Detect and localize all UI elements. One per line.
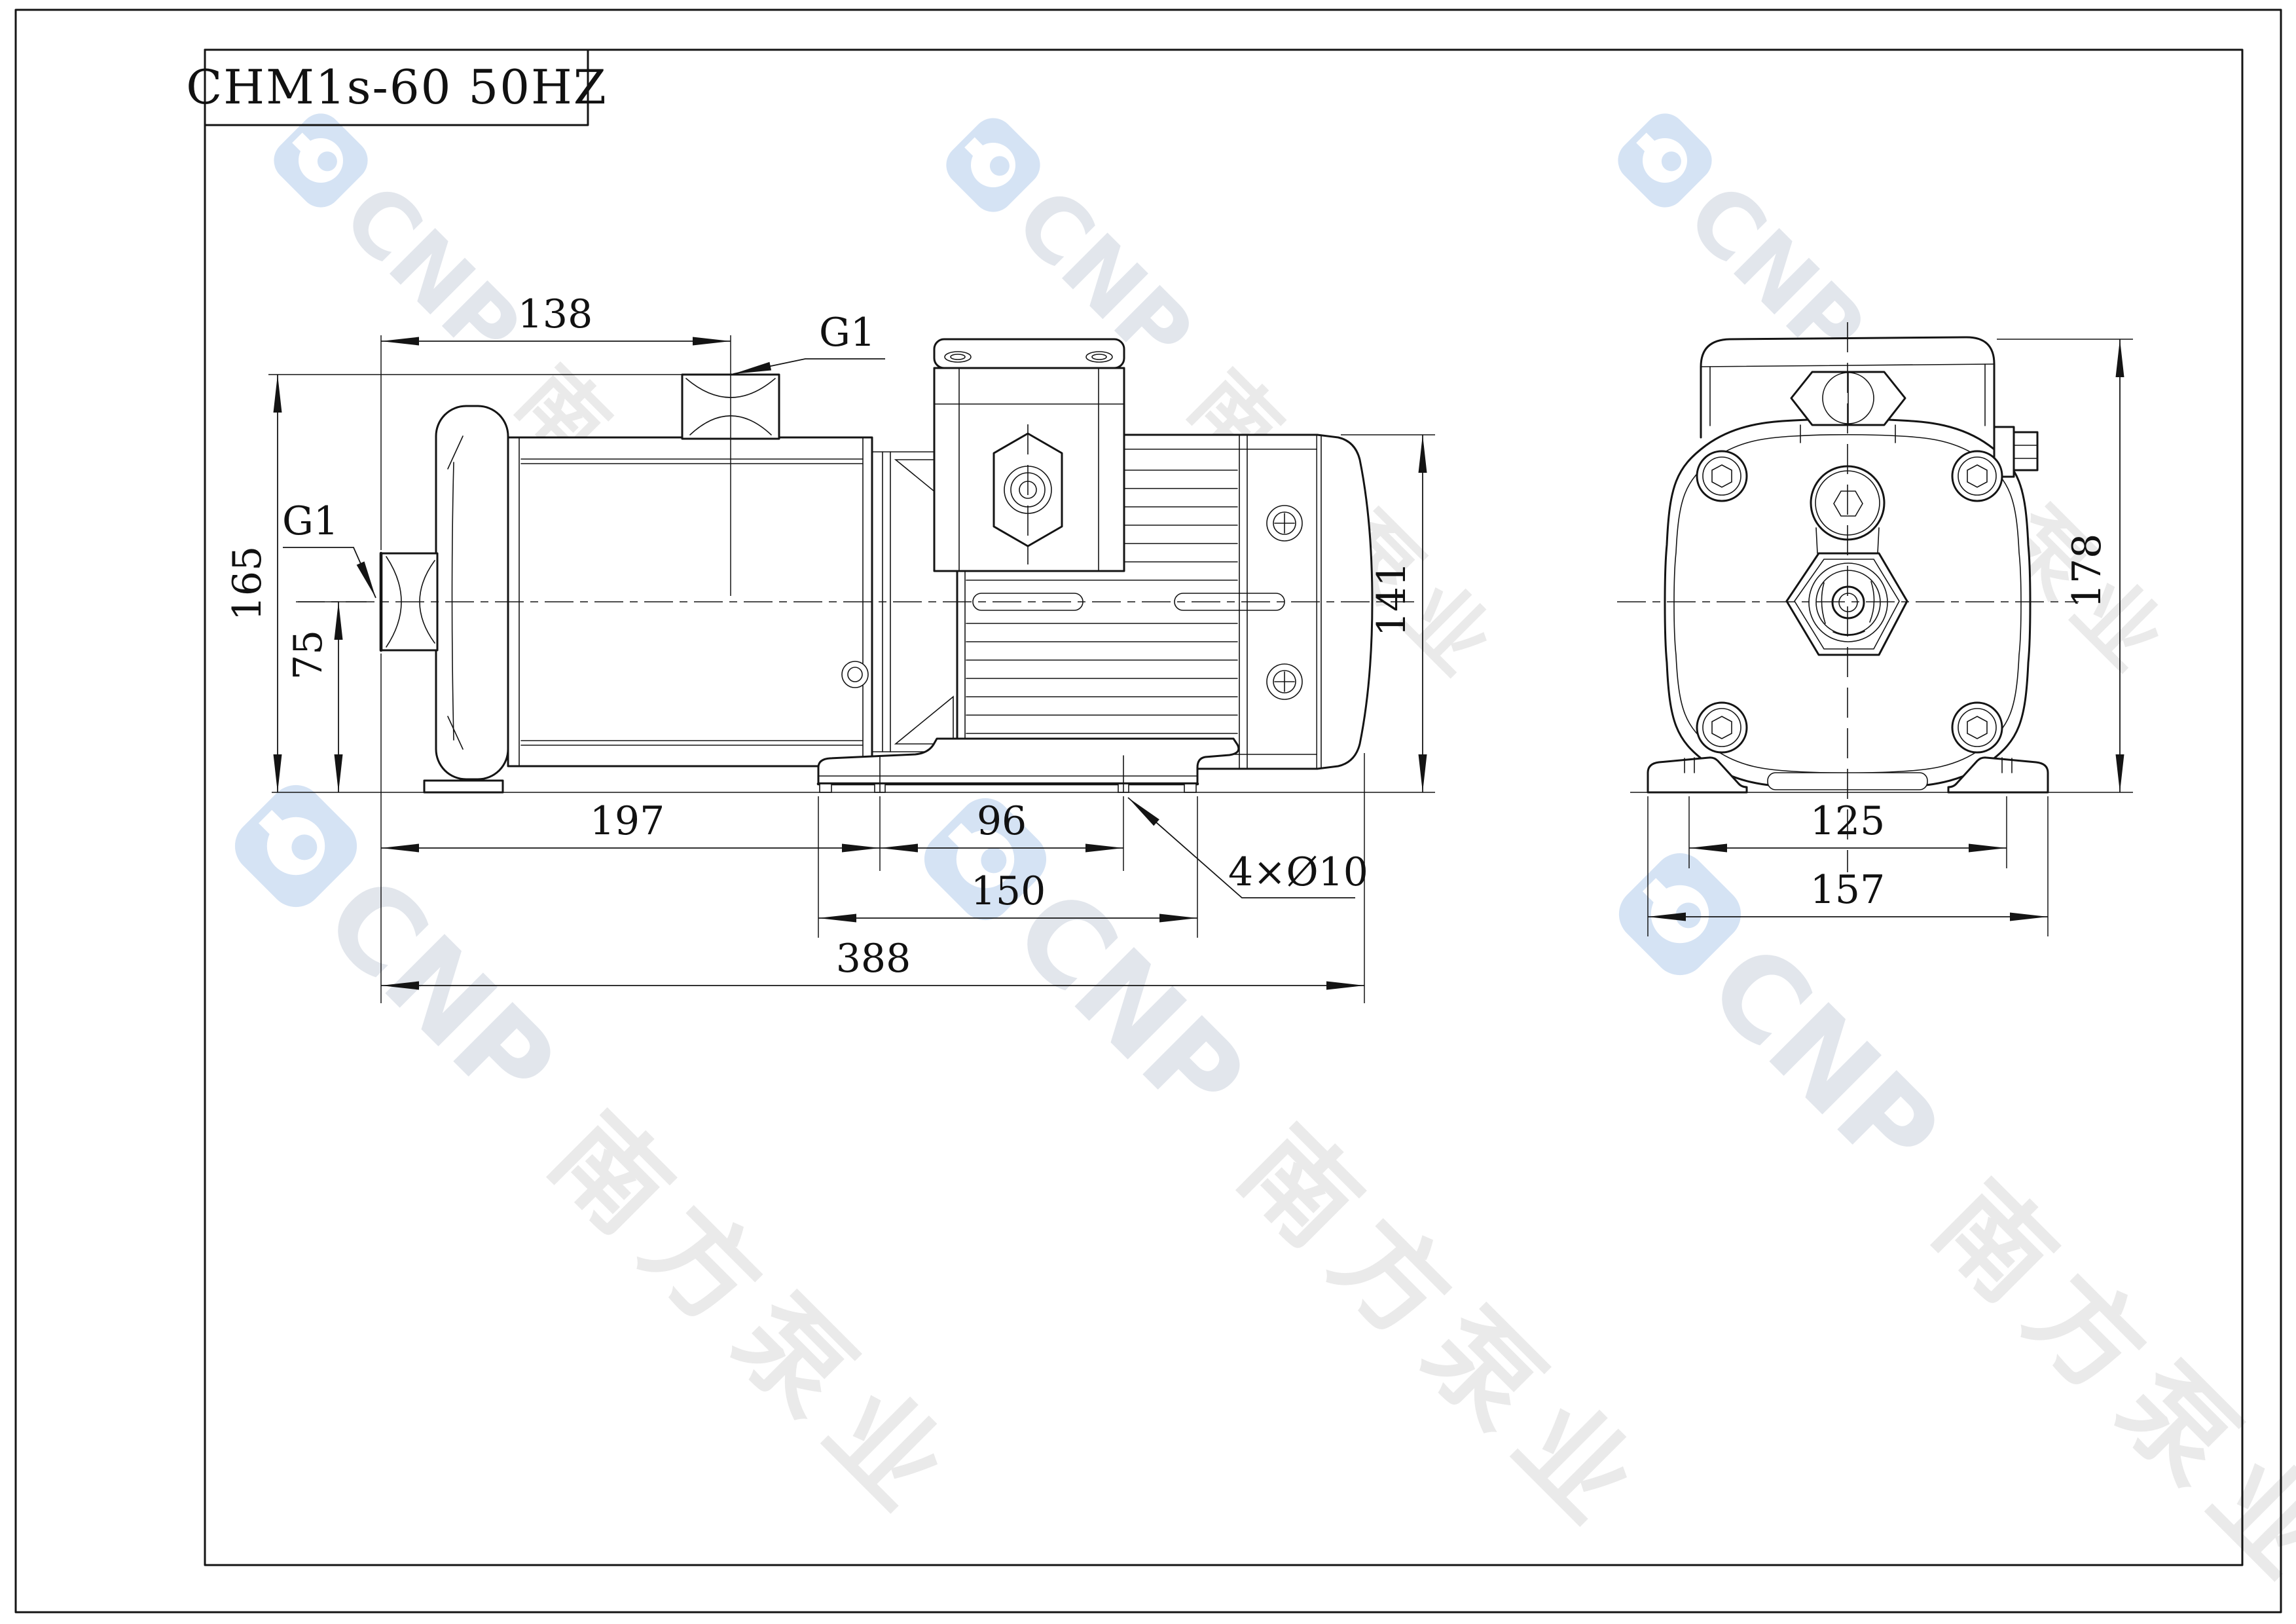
watermark-cjk-text: 南方泵业 bbox=[1911, 1159, 2296, 1614]
rear-screw-top bbox=[1267, 506, 1302, 541]
dim-text-178: 178 bbox=[2064, 534, 2110, 609]
dimension-197: 197 bbox=[381, 798, 880, 848]
watermark-brand-text: CNP bbox=[1683, 919, 1964, 1201]
dim-text-96: 96 bbox=[977, 798, 1027, 844]
dimension-125: 125 bbox=[1689, 798, 2007, 848]
dimension-141: 141 bbox=[1369, 435, 1423, 792]
dim-text-141: 141 bbox=[1369, 562, 1415, 637]
outlet-label: G1 bbox=[733, 310, 885, 374]
rear-screw-bottom bbox=[1267, 664, 1302, 699]
foot-holes-label: 4×Ø10 bbox=[1128, 798, 1368, 898]
dim-text-75: 75 bbox=[285, 630, 331, 680]
terminal-box-side bbox=[934, 339, 1124, 571]
drawing-sheet: CNP 南方泵业 CNP 南方泵业 CNP 南方泵业 CNP 南方泵业 CNP … bbox=[0, 0, 2296, 1624]
watermark-cjk-text: 南方泵业 bbox=[527, 1091, 982, 1546]
drawing-title: CHM1s-60 50HZ bbox=[186, 60, 608, 115]
dim-text-157: 157 bbox=[1810, 867, 1886, 913]
dim-text-138: 138 bbox=[518, 291, 593, 337]
dimension-165: 165 bbox=[225, 375, 278, 792]
watermark-brand-text: CNP bbox=[299, 851, 580, 1133]
end-view bbox=[1617, 322, 2079, 872]
screw-bottom-left bbox=[1697, 703, 1747, 752]
dim-text-150: 150 bbox=[971, 868, 1046, 914]
dim-text-388: 388 bbox=[836, 936, 911, 982]
screw-top-right bbox=[1952, 451, 2002, 501]
dimension-388: 388 bbox=[381, 936, 1364, 986]
watermark-brand-text: CNP bbox=[323, 164, 540, 381]
dimension-75: 75 bbox=[285, 602, 338, 792]
label-text-foot-holes: 4×Ø10 bbox=[1228, 849, 1368, 895]
screw-top-left bbox=[1697, 451, 1747, 501]
motor-foot bbox=[818, 739, 1239, 792]
pump-head-foot bbox=[424, 781, 503, 792]
watermark-bottom-left: CNP 南方泵业 bbox=[208, 764, 991, 1546]
dim-text-125: 125 bbox=[1810, 798, 1886, 844]
inlet-label: G1 bbox=[282, 498, 376, 598]
dimension-150: 150 bbox=[818, 868, 1197, 918]
dim-text-197: 197 bbox=[590, 798, 665, 844]
dimension-96: 96 bbox=[880, 798, 1123, 848]
watermark-bottom-right: CNP 南方泵业 bbox=[1592, 832, 2296, 1614]
drawing-border bbox=[205, 50, 2242, 1565]
pump-dimensional-drawing: CNP 南方泵业 CNP 南方泵业 CNP 南方泵业 CNP 南方泵业 CNP … bbox=[0, 0, 2296, 1624]
watermark-cjk-text: 南方泵业 bbox=[1216, 1104, 1671, 1559]
drain-plug bbox=[842, 661, 868, 688]
screw-bottom-right bbox=[1952, 703, 2002, 752]
dim-text-165: 165 bbox=[225, 546, 270, 621]
label-text-g1-inlet: G1 bbox=[282, 498, 338, 544]
label-text-g1-outlet: G1 bbox=[819, 310, 875, 356]
